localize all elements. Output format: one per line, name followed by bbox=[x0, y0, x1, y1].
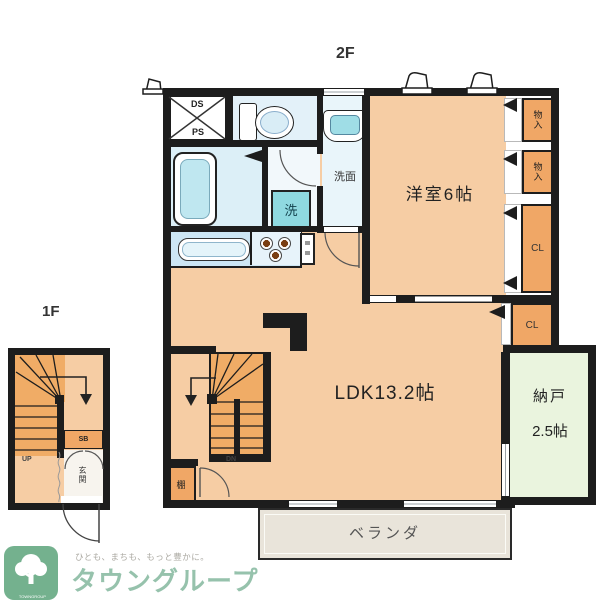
entrance-label: 玄関 bbox=[77, 466, 88, 484]
window bbox=[289, 501, 337, 507]
room-label-ldk: LDK13.2帖 bbox=[305, 378, 465, 405]
floor1-outline-wall bbox=[8, 348, 110, 510]
logo-icon-text: TOWNGROUP bbox=[19, 595, 43, 600]
laundry-pan-fixture: 洗 bbox=[271, 190, 311, 228]
tree-icon bbox=[4, 546, 58, 600]
closet-door bbox=[501, 303, 511, 345]
closet-monoire-1: 物入 bbox=[522, 98, 554, 142]
logo-mark: TOWNGROUP bbox=[4, 546, 58, 600]
utility-box bbox=[300, 233, 315, 265]
door-gap bbox=[370, 296, 396, 302]
closet-cl-lower: CL bbox=[511, 303, 553, 347]
wall bbox=[163, 88, 171, 508]
wall bbox=[166, 226, 317, 232]
window bbox=[324, 89, 364, 95]
room-label-veranda: ベランダ bbox=[320, 522, 450, 543]
kitchen-stove-fixture bbox=[250, 232, 301, 265]
closet-door bbox=[504, 150, 522, 194]
utility-mark bbox=[305, 241, 310, 245]
wall bbox=[317, 146, 323, 154]
closet-monoire-2: 物入 bbox=[522, 150, 554, 194]
wall bbox=[166, 459, 198, 466]
wall bbox=[503, 345, 596, 353]
stove-burner bbox=[260, 237, 273, 250]
toilet-bowl-fixture bbox=[255, 106, 294, 139]
closet-door bbox=[504, 204, 522, 293]
entrance-door-gap bbox=[61, 496, 102, 503]
closet-label: CL bbox=[526, 320, 539, 331]
laundry-label: 洗 bbox=[284, 200, 297, 219]
sliding-door bbox=[415, 296, 492, 302]
wall bbox=[362, 94, 370, 304]
wall bbox=[503, 497, 596, 505]
room-label-storage-size: 2.5帖 bbox=[514, 420, 586, 441]
room-label-washroom: 洗面 bbox=[324, 168, 366, 184]
wall bbox=[166, 346, 216, 354]
closet-label: 物入 bbox=[532, 162, 545, 182]
storage-door-gap bbox=[502, 444, 509, 496]
sink-inner bbox=[182, 242, 246, 257]
window bbox=[404, 501, 496, 507]
door-gap bbox=[324, 227, 358, 232]
closet-label: 物入 bbox=[532, 110, 545, 130]
pipe-space-label: PS bbox=[192, 127, 204, 137]
closet-door bbox=[504, 98, 522, 142]
floor-plan-image: 2F 1F 物入 物入 CL CL DS PS 洗 bbox=[0, 0, 600, 600]
room-label-storage-name: 納戸 bbox=[514, 385, 586, 406]
wall bbox=[290, 313, 307, 351]
stairs-up-label: UP bbox=[22, 456, 32, 463]
wall bbox=[551, 88, 559, 303]
wall bbox=[228, 94, 233, 144]
duct-space-label: DS bbox=[191, 99, 204, 109]
logo-brand: タウングループ bbox=[71, 561, 258, 598]
toilet-bowl-inner bbox=[260, 111, 289, 134]
pipe-space-box: DS PS bbox=[166, 94, 228, 142]
bathtub-fixture bbox=[173, 152, 217, 226]
wall bbox=[588, 345, 596, 505]
wall bbox=[166, 140, 322, 147]
staircase-2f bbox=[209, 352, 265, 456]
bathtub-inner bbox=[180, 159, 210, 219]
shelf-label: 棚 bbox=[176, 478, 185, 491]
floor-label-2f: 2F bbox=[336, 45, 355, 63]
kitchen-sink-fixture bbox=[178, 238, 250, 261]
stove-burner bbox=[269, 249, 282, 262]
floor-label-1f: 1F bbox=[42, 303, 60, 320]
room-label-western: 洋室6帖 bbox=[375, 180, 505, 205]
utility-mark bbox=[305, 251, 310, 255]
wall bbox=[263, 352, 271, 462]
wall bbox=[262, 146, 268, 232]
closet-cl-right: CL bbox=[521, 204, 554, 293]
kitchen-counter bbox=[166, 230, 302, 268]
stove-burner bbox=[278, 237, 291, 250]
washbasin-bowl bbox=[330, 115, 360, 135]
wall bbox=[317, 94, 323, 146]
stairs-down-label: DN bbox=[226, 456, 236, 463]
closet-label: CL bbox=[531, 243, 544, 254]
washbasin-fixture bbox=[323, 110, 367, 142]
wall bbox=[209, 454, 271, 462]
